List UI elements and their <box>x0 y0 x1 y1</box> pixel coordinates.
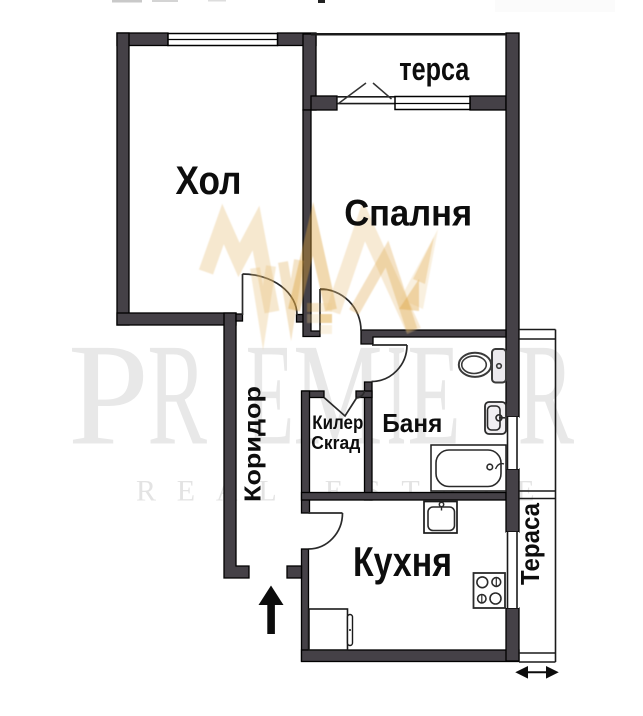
svg-text:Баня: Баня <box>382 408 442 438</box>
svg-text:R: R <box>147 314 207 476</box>
svg-text:Коридор: Коридор <box>239 386 265 502</box>
svg-text:терса: терса <box>399 51 469 87</box>
svg-text:P: P <box>68 314 149 476</box>
svg-text:Скrад: Скrад <box>311 433 361 453</box>
svg-text:Килер: Килер <box>312 413 363 434</box>
svg-text:Хол: Хол <box>176 159 242 203</box>
svg-text:I: I <box>387 315 406 477</box>
svg-text:Тераса: Тераса <box>515 503 545 585</box>
svg-text:R: R <box>518 314 575 475</box>
svg-text:Кухня: Кухня <box>353 538 452 585</box>
svg-text:Спалня: Спалня <box>344 193 472 234</box>
